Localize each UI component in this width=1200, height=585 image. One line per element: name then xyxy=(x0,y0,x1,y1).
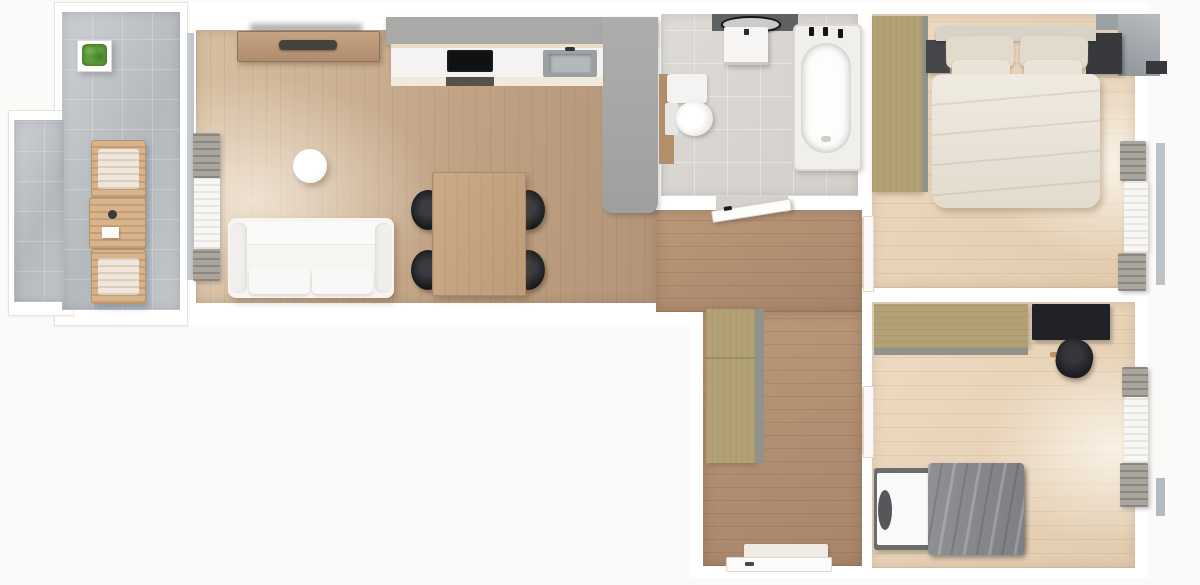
tv-sideboard xyxy=(237,31,380,62)
hallway-wardrobe-side xyxy=(755,309,764,463)
bathtub-drain xyxy=(821,136,831,142)
double-bed xyxy=(932,26,1100,210)
door-handle xyxy=(724,206,733,211)
tub-faucet-center xyxy=(823,27,828,36)
single-bed xyxy=(874,468,1024,550)
kitchen-tall-cabinet-column xyxy=(602,17,658,213)
tub-faucet-left xyxy=(809,27,814,36)
second-wardrobe xyxy=(874,304,1028,348)
hallway-floor-upper xyxy=(656,210,862,312)
second-bedroom-door xyxy=(863,386,874,458)
toilet-shelf xyxy=(667,74,707,103)
second-wardrobe-front xyxy=(874,348,1028,355)
round-side-table xyxy=(293,149,327,183)
table-bowl xyxy=(108,210,117,219)
deck-chair-bottom xyxy=(91,249,146,304)
second-curtain-bunch-bottom xyxy=(1120,463,1148,507)
vanity-faucet xyxy=(744,29,749,35)
second-window-sill xyxy=(1156,478,1165,516)
duvet xyxy=(932,74,1100,208)
second-curtain-bunch-top xyxy=(1122,367,1148,397)
tub-faucet-right xyxy=(838,29,843,38)
kitchen-counter-front xyxy=(391,77,603,86)
master-wardrobe xyxy=(872,16,922,192)
hallway-wardrobe xyxy=(706,309,755,463)
toilet-bowl xyxy=(676,101,713,136)
tv xyxy=(279,40,337,50)
vanity-basin xyxy=(724,27,768,65)
living-curtain-bunch-top xyxy=(193,133,220,178)
master-curtain-sheer xyxy=(1124,181,1148,253)
master-bedroom-door xyxy=(863,216,874,292)
single-bed-pillow xyxy=(878,490,892,530)
sink-basin xyxy=(549,54,591,73)
sofa-seat-cushion-left xyxy=(249,268,310,294)
wardrobe-shelf-line xyxy=(706,357,755,359)
sofa-backrest xyxy=(242,222,380,245)
sink-faucet xyxy=(565,47,575,51)
deck-chair-cushion xyxy=(98,149,139,189)
sofa-seat-cushion-right xyxy=(312,268,373,294)
master-wall-tv-side xyxy=(1146,61,1167,74)
master-curtain-bunch-bottom xyxy=(1118,253,1146,291)
table-napkin xyxy=(102,227,119,238)
kitchen-sink xyxy=(543,50,597,77)
sofa-armrest-right xyxy=(375,223,392,293)
deck-chair-top xyxy=(91,140,146,198)
living-curtain-bunch-bottom xyxy=(193,249,220,281)
cooktop xyxy=(447,50,493,72)
plant-foliage xyxy=(82,44,107,66)
sofa xyxy=(228,218,394,298)
entrance-door-handle xyxy=(745,562,754,566)
master-window-sill xyxy=(1156,143,1165,285)
master-curtain-bunch-top xyxy=(1120,141,1146,181)
second-curtain-sheer xyxy=(1124,397,1148,463)
outdoor-table xyxy=(89,197,146,249)
deck-chair-cushion xyxy=(98,258,139,295)
bathtub xyxy=(793,24,862,171)
living-curtain-sheer xyxy=(194,178,220,249)
balcony-floor-extension xyxy=(14,120,64,302)
oven-front xyxy=(446,77,494,86)
entrance-door xyxy=(726,557,832,572)
sofa-armrest-left xyxy=(230,223,247,293)
desk xyxy=(1032,304,1110,340)
floor-plan-canvas xyxy=(0,0,1200,585)
single-bed-blanket xyxy=(928,463,1024,555)
plant-box xyxy=(77,40,112,72)
dining-table xyxy=(432,172,526,296)
